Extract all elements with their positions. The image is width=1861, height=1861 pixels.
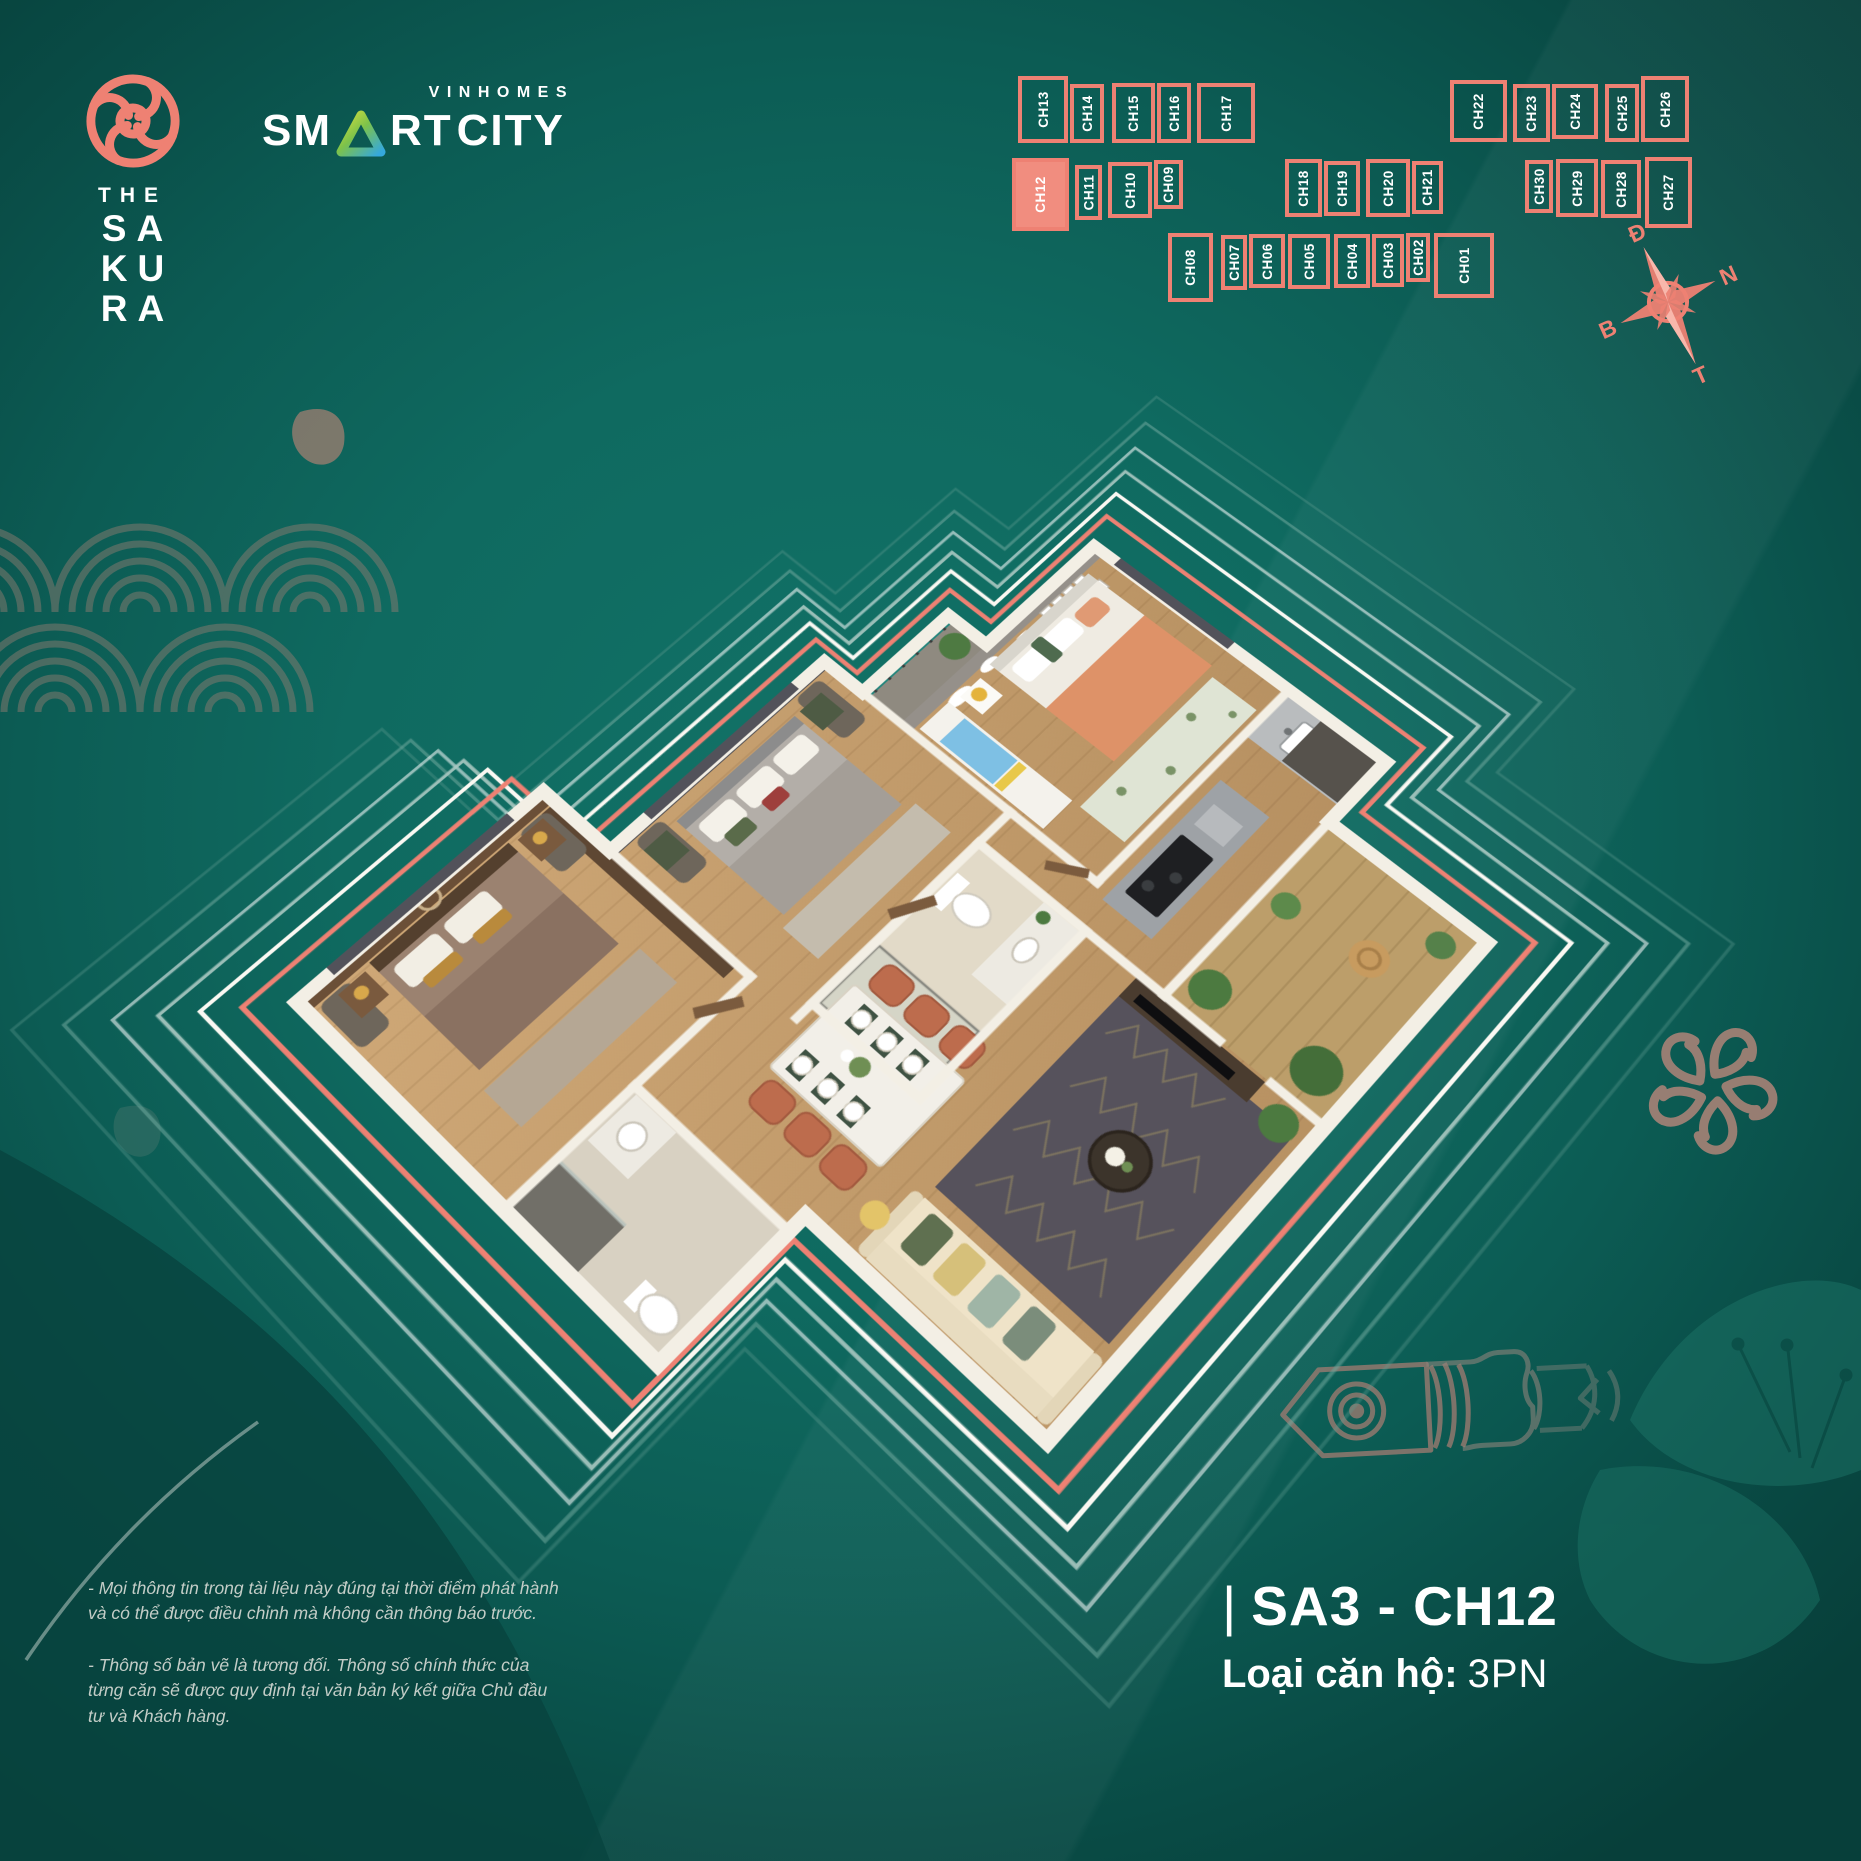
unit-label: CH17: [1218, 95, 1233, 132]
title-bar-separator: |: [1222, 1575, 1237, 1637]
unit-label: CH07: [1227, 244, 1242, 281]
compass-left-label: B: [1595, 314, 1621, 345]
unit-ch09[interactable]: CH09: [1154, 160, 1183, 209]
unit-ch11[interactable]: CH11: [1075, 165, 1102, 220]
unit-label: CH29: [1570, 170, 1585, 207]
unit-label: CH03: [1381, 242, 1396, 279]
unit-ch26[interactable]: CH26: [1641, 76, 1689, 142]
unit-label: CH04: [1345, 243, 1360, 280]
sakura-flower-icon: [1638, 1017, 1789, 1168]
compass-icon: Đ N T B: [1586, 220, 1751, 385]
unit-ch01[interactable]: CH01: [1434, 233, 1494, 298]
unit-label: CH21: [1420, 169, 1435, 206]
unit-label: CH27: [1661, 174, 1676, 211]
unit-ch20[interactable]: CH20: [1366, 159, 1410, 217]
unit-key-map: CH13 CH14 CH15 CH16 CH17 CH22 CH23 CH24 …: [0, 0, 1861, 360]
unit-ch25[interactable]: CH25: [1605, 84, 1639, 142]
unit-ch10[interactable]: CH10: [1108, 162, 1152, 218]
unit-ch16[interactable]: CH16: [1157, 83, 1191, 143]
compass-right-label: N: [1715, 260, 1741, 291]
brochure-page: THE SAKURA VINHOMES SM RT CITY CH13 CH14: [0, 0, 1861, 1861]
unit-ch29[interactable]: CH29: [1556, 159, 1598, 217]
disclaimer-note: - Mọi thông tin trong tài liệu này đúng …: [88, 1576, 566, 1627]
unit-label: CH15: [1126, 95, 1141, 132]
unit-label: CH18: [1296, 170, 1311, 207]
disclaimer-note: - Thông số bản vẽ là tương đối. Thông số…: [88, 1653, 566, 1729]
unit-label: CH23: [1524, 95, 1539, 132]
unit-ch18[interactable]: CH18: [1285, 159, 1322, 217]
unit-label: CH12: [1033, 176, 1048, 213]
unit-label: CH28: [1614, 171, 1629, 208]
unit-label: CH10: [1123, 172, 1138, 209]
koi-fish-icon: [1280, 1346, 1620, 1457]
unit-ch02[interactable]: CH02: [1406, 233, 1430, 282]
unit-ch12[interactable]: CH12: [1012, 158, 1069, 231]
unit-label: CH24: [1567, 93, 1582, 130]
unit-label: CH20: [1381, 170, 1396, 207]
unit-ch04[interactable]: CH04: [1334, 234, 1370, 288]
unit-ch24[interactable]: CH24: [1552, 84, 1598, 139]
unit-code: |SA3 - CH12: [1222, 1574, 1558, 1638]
unit-label: CH14: [1080, 95, 1095, 132]
unit-title-block: |SA3 - CH12 Loại căn hộ:3PN: [1222, 1574, 1558, 1697]
unit-ch21[interactable]: CH21: [1412, 161, 1443, 214]
unit-label: CH01: [1456, 247, 1471, 284]
petal-decor: [114, 409, 345, 1157]
unit-ch07[interactable]: CH07: [1221, 235, 1247, 290]
unit-label: CH19: [1335, 170, 1350, 207]
unit-ch15[interactable]: CH15: [1112, 83, 1155, 143]
unit-ch08[interactable]: CH08: [1168, 233, 1213, 302]
unit-ch19[interactable]: CH19: [1324, 161, 1360, 216]
unit-label: CH11: [1081, 175, 1096, 211]
apartment-type: Loại căn hộ:3PN: [1222, 1652, 1558, 1697]
unit-ch03[interactable]: CH03: [1372, 234, 1404, 287]
unit-label: CH09: [1161, 166, 1176, 203]
unit-ch14[interactable]: CH14: [1070, 84, 1104, 143]
unit-ch27[interactable]: CH27: [1645, 157, 1692, 228]
unit-label: CH30: [1532, 168, 1547, 205]
unit-label: CH13: [1035, 91, 1050, 128]
unit-label: CH22: [1471, 93, 1486, 130]
compass-top-label: Đ: [1624, 220, 1650, 248]
compass-bottom-label: T: [1689, 360, 1712, 385]
unit-ch30[interactable]: CH30: [1525, 160, 1553, 213]
disclaimer: - Mọi thông tin trong tài liệu này đúng …: [88, 1576, 566, 1755]
big-flower-silhouette: [1578, 1280, 1861, 1663]
unit-label: CH16: [1167, 95, 1182, 132]
unit-ch22[interactable]: CH22: [1450, 80, 1507, 142]
wave-pattern: [0, 527, 395, 712]
unit-ch17[interactable]: CH17: [1197, 83, 1255, 143]
unit-label: CH25: [1615, 95, 1630, 132]
unit-ch06[interactable]: CH06: [1249, 234, 1285, 288]
unit-label: CH05: [1302, 243, 1317, 280]
unit-ch23[interactable]: CH23: [1513, 84, 1550, 142]
unit-ch05[interactable]: CH05: [1288, 234, 1330, 289]
unit-ch13[interactable]: CH13: [1018, 76, 1068, 143]
unit-label: CH02: [1411, 239, 1426, 276]
unit-label: CH06: [1260, 243, 1275, 280]
unit-ch28[interactable]: CH28: [1601, 160, 1641, 218]
unit-label: CH26: [1657, 91, 1672, 128]
unit-label: CH08: [1183, 249, 1198, 286]
